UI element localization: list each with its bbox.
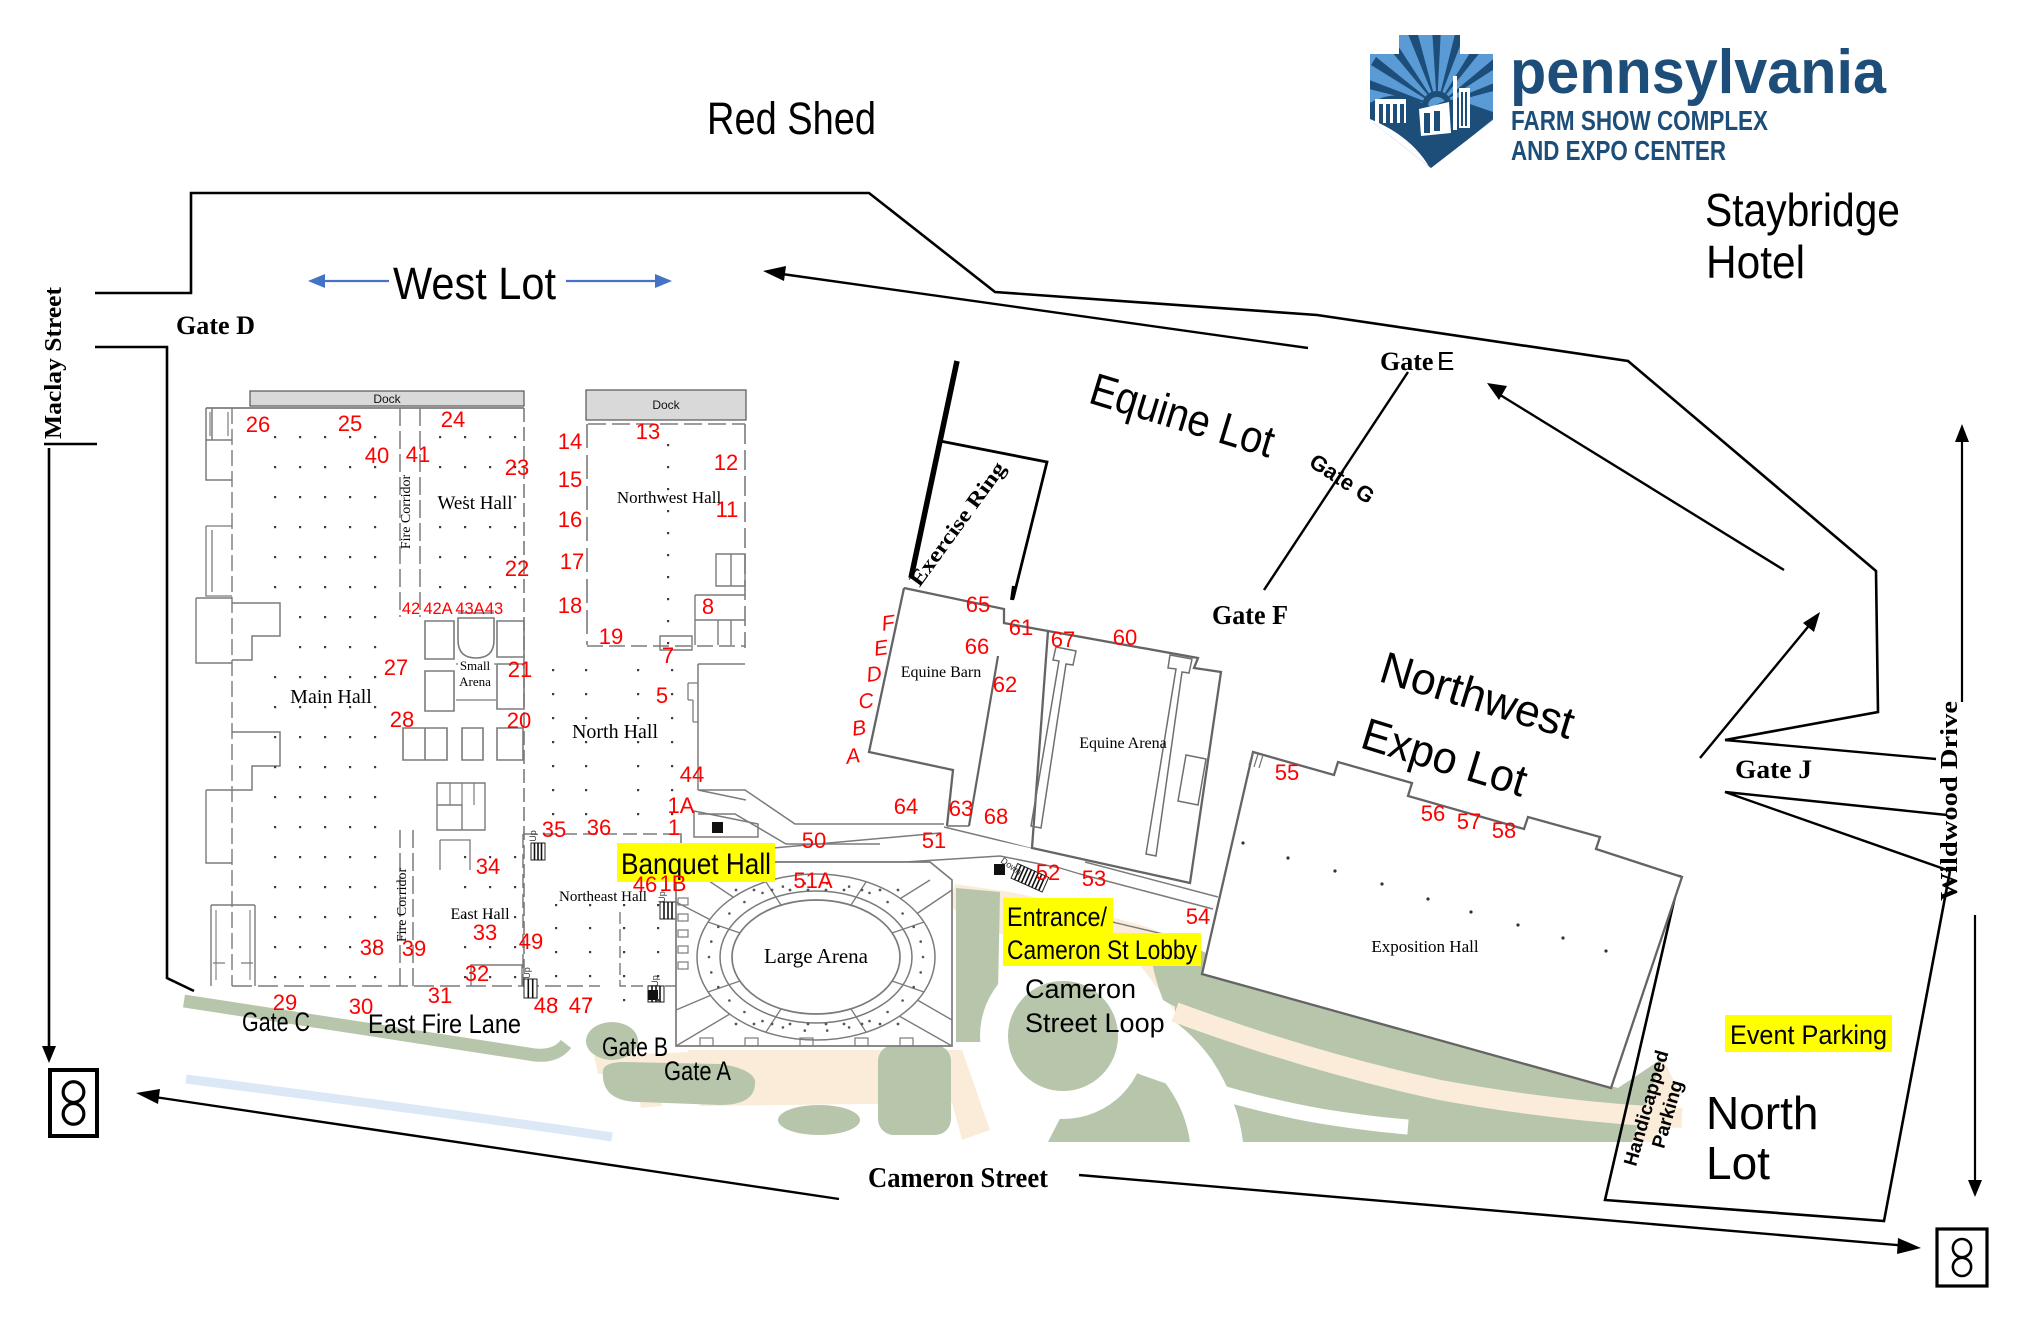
svg-text:56: 56 (1421, 801, 1445, 826)
svg-text:42: 42 (402, 600, 420, 618)
svg-text:65: 65 (966, 592, 990, 617)
svg-text:43: 43 (485, 600, 503, 618)
svg-text:39: 39 (402, 936, 426, 961)
svg-text:West Hall: West Hall (438, 493, 513, 514)
svg-text:Cameron: Cameron (1025, 974, 1136, 1004)
svg-text:57: 57 (1457, 809, 1481, 834)
svg-text:27: 27 (384, 655, 408, 680)
svg-text:58: 58 (1492, 818, 1516, 843)
svg-text:11: 11 (716, 497, 739, 522)
svg-text:30: 30 (349, 994, 373, 1019)
svg-text:Entrance/: Entrance/ (1007, 902, 1107, 932)
svg-text:66: 66 (965, 634, 989, 659)
svg-text:Gate A: Gate A (664, 1056, 731, 1086)
svg-text:Lot: Lot (1706, 1137, 1770, 1189)
svg-text:24: 24 (441, 407, 465, 432)
svg-text:Small: Small (460, 658, 491, 673)
svg-text:Hotel: Hotel (1706, 236, 1805, 288)
svg-text:18: 18 (558, 593, 582, 618)
svg-text:15: 15 (558, 467, 582, 492)
svg-text:D: D (865, 662, 883, 687)
svg-text:41: 41 (406, 442, 430, 467)
svg-text:13: 13 (636, 419, 660, 444)
svg-text:East Fire Lane: East Fire Lane (368, 1009, 521, 1039)
svg-text:67: 67 (1051, 627, 1075, 652)
svg-text:46: 46 (633, 872, 657, 897)
svg-text:AND EXPO CENTER: AND EXPO CENTER (1511, 135, 1726, 166)
svg-text:63: 63 (949, 796, 973, 821)
svg-text:Northwest Hall: Northwest Hall (617, 488, 722, 507)
svg-text:Equine Barn: Equine Barn (901, 664, 981, 681)
svg-text:17: 17 (560, 549, 584, 574)
svg-text:36: 36 (587, 815, 611, 840)
svg-text:51A: 51A (793, 868, 832, 893)
svg-text:16: 16 (558, 507, 582, 532)
svg-text:Up: Up (522, 967, 532, 979)
svg-text:19: 19 (599, 624, 623, 649)
svg-text:52: 52 (1036, 860, 1060, 885)
svg-text:Wildwood Drive: Wildwood Drive (1937, 701, 1963, 901)
svg-text:35: 35 (542, 817, 566, 842)
svg-text:North: North (1706, 1087, 1818, 1139)
svg-text:28: 28 (390, 707, 414, 732)
svg-text:23: 23 (505, 455, 529, 480)
svg-text:14: 14 (558, 429, 582, 454)
svg-text:32: 32 (465, 961, 489, 986)
svg-text:42A: 42A (423, 600, 452, 618)
svg-text:pennsylvania: pennsylvania (1510, 38, 1886, 107)
svg-text:25: 25 (338, 411, 362, 436)
svg-text:43A: 43A (455, 600, 484, 618)
svg-text:50: 50 (802, 828, 826, 853)
svg-text:Gate D: Gate D (176, 311, 255, 340)
svg-text:1: 1 (668, 815, 680, 840)
svg-text:Staybridge: Staybridge (1705, 184, 1900, 236)
svg-text:Equine Arena: Equine Arena (1079, 735, 1167, 752)
svg-text:53: 53 (1082, 866, 1106, 891)
svg-text:West Lot: West Lot (393, 258, 556, 309)
svg-text:34: 34 (476, 854, 500, 879)
svg-text:62: 62 (993, 672, 1017, 697)
svg-text:Dock: Dock (652, 398, 680, 412)
svg-text:22: 22 (505, 556, 529, 581)
svg-text:8: 8 (702, 594, 714, 619)
svg-text:Street Loop: Street Loop (1025, 1008, 1165, 1038)
svg-text:1B: 1B (660, 871, 687, 896)
svg-text:Arena: Arena (459, 674, 491, 689)
svg-text:48: 48 (534, 993, 558, 1018)
svg-text:Cameron St Lobby: Cameron St Lobby (1007, 935, 1197, 965)
svg-text:Up: Up (650, 975, 660, 987)
svg-text:64: 64 (894, 794, 918, 819)
svg-text:61: 61 (1009, 615, 1033, 640)
svg-text:Gate F: Gate F (1212, 600, 1288, 630)
svg-text:51: 51 (922, 828, 946, 853)
svg-text:38: 38 (360, 935, 384, 960)
svg-text:Fire Corridor: Fire Corridor (399, 475, 414, 550)
svg-text:Gate: Gate (1380, 347, 1433, 376)
svg-text:Large Arena: Large Arena (764, 944, 869, 968)
svg-text:Main Hall: Main Hall (290, 686, 372, 708)
svg-text:54: 54 (1186, 904, 1210, 929)
svg-text:FARM SHOW COMPLEX: FARM SHOW COMPLEX (1511, 105, 1768, 136)
svg-text:40: 40 (365, 443, 389, 468)
svg-text:29: 29 (273, 990, 297, 1015)
svg-text:26: 26 (246, 412, 270, 437)
svg-text:21: 21 (508, 657, 532, 682)
svg-text:E: E (1437, 346, 1454, 376)
svg-text:Maclay Street: Maclay Street (41, 287, 67, 439)
svg-text:44: 44 (680, 762, 704, 787)
svg-text:Fire Corridor: Fire Corridor (395, 868, 410, 943)
svg-text:Red Shed: Red Shed (707, 93, 876, 144)
svg-text:Event Parking: Event Parking (1730, 1020, 1887, 1050)
svg-text:North Hall: North Hall (572, 721, 659, 743)
svg-text:Up: Up (528, 830, 538, 842)
svg-text:Exposition Hall: Exposition Hall (1371, 937, 1478, 956)
svg-text:33: 33 (473, 920, 497, 945)
svg-text:20: 20 (507, 708, 531, 733)
svg-text:7: 7 (662, 643, 674, 668)
svg-text:5: 5 (656, 683, 668, 708)
svg-text:68: 68 (984, 804, 1008, 829)
svg-text:12: 12 (714, 450, 738, 475)
svg-text:49: 49 (519, 929, 543, 954)
svg-text:Cameron Street: Cameron Street (868, 1163, 1049, 1194)
svg-text:Gate J: Gate J (1735, 755, 1812, 784)
svg-text:55: 55 (1275, 760, 1299, 785)
svg-text:60: 60 (1113, 625, 1137, 650)
svg-text:Dock: Dock (373, 392, 401, 406)
svg-text:Gate B: Gate B (602, 1032, 668, 1062)
svg-text:47: 47 (569, 993, 593, 1018)
svg-text:31: 31 (428, 983, 452, 1008)
